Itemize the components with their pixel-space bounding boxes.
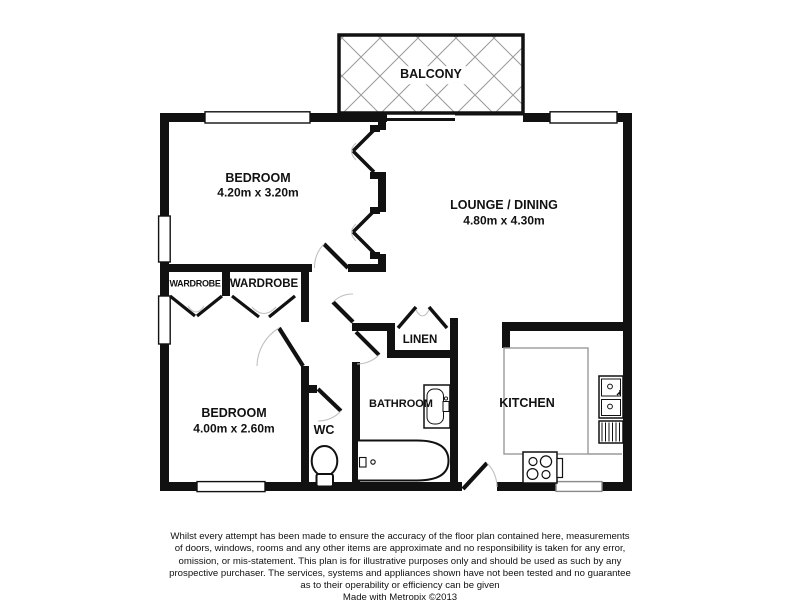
label-bedroom2: BEDROOM [201,406,266,422]
label-wc: WC [314,423,335,439]
label-wardrobe-2: WARDROBE [230,277,298,291]
window-bedroom1-left [159,216,171,262]
wall-linen-bottom [387,350,458,358]
label-bedroom1: BEDROOM [225,171,290,185]
floorplan-drawing [0,0,800,600]
bathtub [357,441,449,481]
wall-wardrobe-divider [222,272,230,296]
wall-bathroom-right [450,318,458,482]
linen-double-doors [398,307,447,328]
draining-board [599,421,623,443]
window-lounge-top [550,112,617,123]
label-kitchen: KITCHEN [499,396,555,412]
kitchen-sink [599,376,623,418]
window-bedroom2-left [159,296,171,344]
toilet [312,446,338,487]
bath-tap-icon [360,458,367,468]
door-bedroom1 [314,244,348,268]
wall-kitchen-top [502,322,632,331]
cupboard-doors-bedroom1 [353,130,374,253]
disclaimer-text: Whilst every attempt has been made to en… [166,531,634,592]
hob-handle [557,459,563,478]
label-bedroom2-dims: 4.00m x 2.60m [193,422,274,437]
window-bedroom1-top [205,112,310,123]
wall-bathroom-top [352,323,395,331]
cupboard-hinge-stub [370,252,380,259]
floorplan-page: BALCONY BEDROOM 4.20m x 3.20m LOUNGE / D… [0,0,800,600]
entrance-door [463,463,497,489]
label-balcony: BALCONY [395,66,467,84]
sliding-patio-door [387,114,523,120]
wall-kitchen-return [502,322,510,348]
label-lounge-dims: 4.80m x 4.30m [463,214,544,229]
window-kitchen-bottom [556,482,602,492]
door-bedroom2 [257,328,303,366]
wall-bedroom1-bottom [160,264,312,272]
sink-tap-icon [443,402,449,412]
wall-right [623,113,632,491]
label-bathroom: BATHROOM [369,398,433,412]
kitchen-fittings [504,348,623,483]
wall-bedroom2-hall-upper [301,264,309,322]
label-lounge: LOUNGE / DINING [450,198,558,214]
cupboard-hinge-stub [370,172,380,179]
credit-text: Made with Metropix ©2013 [343,592,457,600]
label-wardrobe-1: WARDROBE [169,278,220,289]
wall-bedroom1-bottom-stub [348,264,386,272]
wall-wc-top [301,385,317,393]
label-bedroom1-dims: 4.20m x 3.20m [217,186,298,201]
label-linen: LINEN [403,333,438,347]
door-wc [318,389,341,421]
window-bedroom2-bottom [197,482,265,492]
hob [523,452,563,483]
wall-bedroom2-hall-lower [301,366,309,482]
door-bathroom [356,332,379,364]
door-hall-lounge [333,294,353,322]
